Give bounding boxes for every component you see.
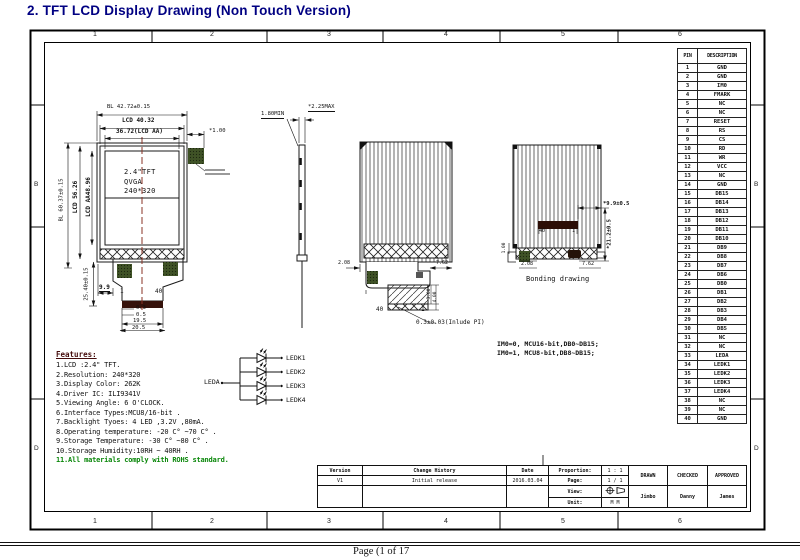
led-cathode-label: LEDK4 [286, 397, 306, 404]
dim-fmark-offset: *1.00 [209, 129, 226, 135]
pin-number: 16 [678, 199, 698, 208]
feature-item: 5.Viewing Angle: 6 O'CLOCK. [56, 399, 229, 409]
pin-table: PIN DESCRIPTION 1 GND 2 GND 3 IM0 4 FMAR… [677, 48, 747, 424]
pin-description: NC [698, 334, 747, 343]
pin-description: RESET [698, 118, 747, 127]
pin-table-row: 27 DB2 [678, 298, 747, 307]
title-block: Version Change History Date Proportion: … [317, 465, 747, 508]
pin-table-row: 22 DB8 [678, 253, 747, 262]
pin-description: DB0 [698, 280, 747, 289]
pin-table-row: 3 IM0 [678, 82, 747, 91]
pin-table-row: 34 LEDK1 [678, 361, 747, 370]
pin-table-row: 23 DB7 [678, 262, 747, 271]
pin-table-row: 29 DB4 [678, 316, 747, 325]
pin-number: 18 [678, 217, 698, 226]
pin1-label: 1 [120, 289, 124, 295]
pin-table-row: 14 GND [678, 181, 747, 190]
dim-stiffener-2: 4.00 [433, 292, 438, 303]
pin-description: NC [698, 109, 747, 118]
dim-aa-height: LCD AA48.96 [86, 177, 92, 217]
feature-item: 8.Operating temperature: -20 C° ~70 C° . [56, 428, 229, 438]
pin-table-row: 24 DB6 [678, 271, 747, 280]
feature-item: 1.LCD :2.4" TFT. [56, 361, 229, 371]
pin-table-row: 35 LEDK2 [678, 370, 747, 379]
features-heading: Features: [56, 350, 229, 359]
pin-table-row: 11 WR [678, 154, 747, 163]
pin-number: 7 [678, 118, 698, 127]
fmark-square [188, 148, 204, 164]
zone-number-bottom: 6 [678, 518, 682, 525]
pin-number: 20 [678, 235, 698, 244]
led-circuit [221, 349, 283, 405]
pin-number: 39 [678, 406, 698, 415]
pin-description: DB10 [698, 235, 747, 244]
dim-fpc-length: 25.40±0.15 [84, 267, 90, 300]
pin-number: 13 [678, 172, 698, 181]
pin-number: 30 [678, 325, 698, 334]
drawn-label: DRAWN [629, 466, 668, 486]
led-cathode-label: LEDK3 [286, 383, 306, 390]
panel-label-type: QVGA [124, 179, 142, 186]
side-view [297, 145, 307, 328]
zone-number-top: 3 [327, 31, 331, 38]
pin-number: 26 [678, 289, 698, 298]
pin-table-row: 26 DB1 [678, 289, 747, 298]
zone-letter-right: D [754, 445, 759, 452]
led-cathode-label: LEDK2 [286, 369, 306, 376]
pin-description: LEDA [698, 352, 747, 361]
pin-number: 8 [678, 127, 698, 136]
pin-description: GND [698, 73, 747, 82]
dim-bonding-height: *21.2±0.5 [607, 219, 613, 249]
pin-number: 32 [678, 343, 698, 352]
feature-item: 3.Display Color: 262K [56, 380, 229, 390]
pin-number: 37 [678, 388, 698, 397]
pin-description: DB3 [698, 307, 747, 316]
dim-lcd-height: LCD 56.26 [73, 181, 79, 214]
pin-description: DB11 [698, 226, 747, 235]
pin-description: GND [698, 181, 747, 190]
pin-description: DB2 [698, 298, 747, 307]
fpc-thickness-note: 0.3±0.03(Inlude PI) [416, 320, 485, 326]
pin-description: RD [698, 145, 747, 154]
checked-label: CHECKED [668, 466, 708, 486]
pin-description: DB9 [698, 244, 747, 253]
dim-min-thickness: 1.80MIN [261, 112, 284, 119]
pin-number: 35 [678, 370, 698, 379]
fmark-note [196, 164, 230, 175]
pin-number: 10 [678, 145, 698, 154]
zone-number-bottom: 2 [210, 518, 214, 525]
date-value: 2016.03.04 [507, 476, 549, 486]
pin-number: 40 [678, 415, 698, 424]
pin-table-row: 1 GND [678, 64, 747, 73]
pin-table-row: 6 NC [678, 109, 747, 118]
feature-item: 6.Interface Types:MCU8/16-bit . [56, 409, 229, 419]
page-label: Page: [549, 476, 602, 486]
page-footer: Page (1 of 17 [353, 546, 409, 557]
pin-table-row: 39 NC [678, 406, 747, 415]
pin-table-row: 2 GND [678, 73, 747, 82]
pin-number: 17 [678, 208, 698, 217]
dim-fpc-offset: 9.9 [99, 285, 110, 292]
dim-195: 19.5 [133, 319, 146, 325]
pin-number: 25 [678, 280, 698, 289]
pin-number: 5 [678, 100, 698, 109]
pin-number: 11 [678, 154, 698, 163]
feature-item-rohs: 11.All materials comply with ROHS standa… [56, 456, 229, 466]
pin-description: DB4 [698, 316, 747, 325]
checked-name: Danny [668, 486, 708, 508]
pin-number: 4 [678, 91, 698, 100]
pin-table-row: 4 FMARK [678, 91, 747, 100]
dim-bonding-edge: 1.00 [503, 243, 508, 254]
pin-number: 6 [678, 109, 698, 118]
features-list: Features: 1.LCD :2.4" TFT.2.Resolution: … [56, 350, 229, 466]
pin-number: 2 [678, 73, 698, 82]
pin-table-row: 28 DB3 [678, 307, 747, 316]
zone-number-top: 2 [210, 31, 214, 38]
proportion-value: 1 : 1 [602, 466, 629, 476]
pin-table-row: 30 DB5 [678, 325, 747, 334]
pin-table-row: 15 DB15 [678, 190, 747, 199]
bonding-view [508, 145, 605, 262]
pin40-label: 40 [155, 289, 162, 295]
pin-number: 3 [678, 82, 698, 91]
zone-letter-left: B [34, 181, 38, 188]
pin-table-row: 5 NC [678, 100, 747, 109]
led-cathode-label: LEDK1 [286, 355, 306, 362]
dim-bonding-left: 2.08 [521, 262, 533, 267]
zone-number-top: 4 [444, 31, 448, 38]
pin-number: 28 [678, 307, 698, 316]
pin-table-row: 40 GND [678, 415, 747, 424]
pin-number: 38 [678, 397, 698, 406]
pin-description: DB13 [698, 208, 747, 217]
pin-description: NC [698, 172, 747, 181]
zone-number-top: 6 [678, 31, 682, 38]
dim-aa-width: 36.72(LCD AA) [116, 129, 163, 135]
dim-bl-height: BL 60.37±0.15 [59, 178, 65, 221]
pin-description: GND [698, 64, 747, 73]
approved-name: James [708, 486, 747, 508]
feature-item: 2.Resolution: 240*320 [56, 371, 229, 381]
pin-number: 36 [678, 379, 698, 388]
pin-number: 29 [678, 316, 698, 325]
pin-number: 14 [678, 181, 698, 190]
pin-number: 34 [678, 361, 698, 370]
pin-number: 9 [678, 136, 698, 145]
dim-bonding-right: 7.62 [582, 262, 594, 267]
pin-description: GND [698, 415, 747, 424]
bonding-caption: Bonding drawing [526, 276, 589, 283]
pin-number: 33 [678, 352, 698, 361]
approved-label: APPROVED [708, 466, 747, 486]
page-title: 2. TFT LCD Display Drawing (Non Touch Ve… [27, 3, 351, 18]
fpc-component [117, 264, 132, 278]
pin-description: DB6 [698, 271, 747, 280]
pin-table-row: 37 LEDK4 [678, 388, 747, 397]
back-pin40-label: 40 [376, 307, 383, 313]
dim-03: 0.3 [136, 306, 146, 312]
version-label: Version [318, 466, 363, 476]
zone-number-top: 1 [93, 31, 97, 38]
pin-table-row: 38 NC [678, 397, 747, 406]
pin-table-row: 9 CS [678, 136, 747, 145]
pin-table-row: 21 DB9 [678, 244, 747, 253]
pin-description: DB15 [698, 190, 747, 199]
pin-number: 21 [678, 244, 698, 253]
pin-description: VCC [698, 163, 747, 172]
pin-number: 1 [678, 64, 698, 73]
pin-description: NC [698, 406, 747, 415]
pin-description: WR [698, 154, 747, 163]
pin-description: RS [698, 127, 747, 136]
dim-bonding-width: *9.9±0.5 [603, 202, 630, 208]
pin-table-row: 13 NC [678, 172, 747, 181]
pin-number: 19 [678, 226, 698, 235]
fpc-component [163, 262, 178, 276]
feature-item: 10.Storage Humidity:10RH ~ 40RH . [56, 447, 229, 457]
pin-number: 15 [678, 190, 698, 199]
feature-item: 4.Driver IC: ILI9341V [56, 390, 229, 400]
projection-symbol [604, 486, 627, 495]
pin-description: DB14 [698, 199, 747, 208]
back-pin1-label: 1 [421, 307, 425, 313]
pin-table-row: 33 LEDA [678, 352, 747, 361]
im-note-line2: IM0=1, MCU8-bit,DB8~DB15; [497, 349, 595, 357]
zone-number-bottom: 1 [93, 518, 97, 525]
pin-table-row: 18 DB12 [678, 217, 747, 226]
unit-label: Unit: [549, 498, 602, 508]
pin-description: LEDK3 [698, 379, 747, 388]
pin-description: DB7 [698, 262, 747, 271]
date-label: Date [507, 466, 549, 476]
pin-table-row: 8 RS [678, 127, 747, 136]
pin-number: 24 [678, 271, 698, 280]
pin-table-row: 12 VCC [678, 163, 747, 172]
zone-letter-left: D [34, 445, 39, 452]
im-note-line1: IM0=0, MCU16-bit,DB0~DB15; [497, 340, 599, 348]
title-block-empty-cell [318, 486, 363, 508]
projection-symbol-cell [602, 486, 629, 498]
panel-label-size: 2.4"TFT [124, 169, 156, 176]
view-label: View: [549, 486, 602, 498]
feature-item: 7.Backlight Tyoes: 4 LED ,3.2V ,80mA. [56, 418, 229, 428]
zone-number-bottom: 4 [444, 518, 448, 525]
change-history-label: Change History [363, 466, 507, 476]
pin-description: DB1 [698, 289, 747, 298]
dim-205: 20.5 [132, 326, 145, 332]
unit-value: M M [602, 498, 629, 508]
pin-description: NC [698, 100, 747, 109]
pin-table-row: 25 DB0 [678, 280, 747, 289]
pin-description: LEDK2 [698, 370, 747, 379]
feature-item: 9.Storage Temperature: -30 C° ~80 C° . [56, 437, 229, 447]
pin-table-header-pin: PIN [678, 49, 698, 64]
pin-number: 12 [678, 163, 698, 172]
drawing-sheet: 2. TFT LCD Display Drawing (Non Touch Ve… [0, 0, 800, 560]
pin-table-row: 31 NC [678, 334, 747, 343]
pin-description: DB12 [698, 217, 747, 226]
pin-table-header-description: DESCRIPTION [698, 49, 747, 64]
dim-bl-width: BL 42.72±0.15 [107, 105, 150, 111]
pin-description: DB8 [698, 253, 747, 262]
title-block-empty-cell [363, 486, 507, 508]
pin-number: 23 [678, 262, 698, 271]
title-block-empty-cell [507, 486, 549, 508]
pin-table-row: 10 RD [678, 145, 747, 154]
zone-number-bottom: 5 [561, 518, 565, 525]
zone-number-bottom: 3 [327, 518, 331, 525]
pin-description: LEDK1 [698, 361, 747, 370]
pin-number: 22 [678, 253, 698, 262]
dim-stiffener-1: 3.00 [428, 289, 433, 300]
proportion-label: Proportion: [549, 466, 602, 476]
pin-number: 27 [678, 298, 698, 307]
pin-description: NC [698, 397, 747, 406]
pin-table-row: 36 LEDK3 [678, 379, 747, 388]
zone-number-top: 5 [561, 31, 565, 38]
dim-back-left: 2.08 [338, 261, 350, 266]
pin-description: DB5 [698, 325, 747, 334]
pin-description: CS [698, 136, 747, 145]
pin-table-row: 17 DB13 [678, 208, 747, 217]
pin-table-row: 32 NC [678, 343, 747, 352]
pin-table-row: 19 DB11 [678, 226, 747, 235]
pin-description: LEDK4 [698, 388, 747, 397]
pin-description: IM0 [698, 82, 747, 91]
zone-letter-right: B [754, 181, 758, 188]
pin-table-row: 16 DB14 [678, 199, 747, 208]
version-value: V1 [318, 476, 363, 486]
bonding-pin1-label: 1 [572, 229, 575, 234]
pin-table-row: 7 RESET [678, 118, 747, 127]
dim-thickness: *2.25MAX [308, 105, 335, 112]
page-value: 1 / 1 [602, 476, 629, 486]
bonding-pin40-label: 40 [539, 229, 545, 234]
side-view-dims [287, 117, 314, 146]
pin-description: NC [698, 343, 747, 352]
dim-lcd-width: LCD 40.32 [122, 118, 155, 124]
dim-back-right: 7.62 [436, 261, 448, 266]
pin-description: FMARK [698, 91, 747, 100]
drawn-name: Jimbo [629, 486, 668, 508]
change-history-value: Initial release [363, 476, 507, 486]
pin-number: 31 [678, 334, 698, 343]
panel-label-resolution: 240*320 [124, 188, 156, 195]
pin-table-row: 20 DB10 [678, 235, 747, 244]
